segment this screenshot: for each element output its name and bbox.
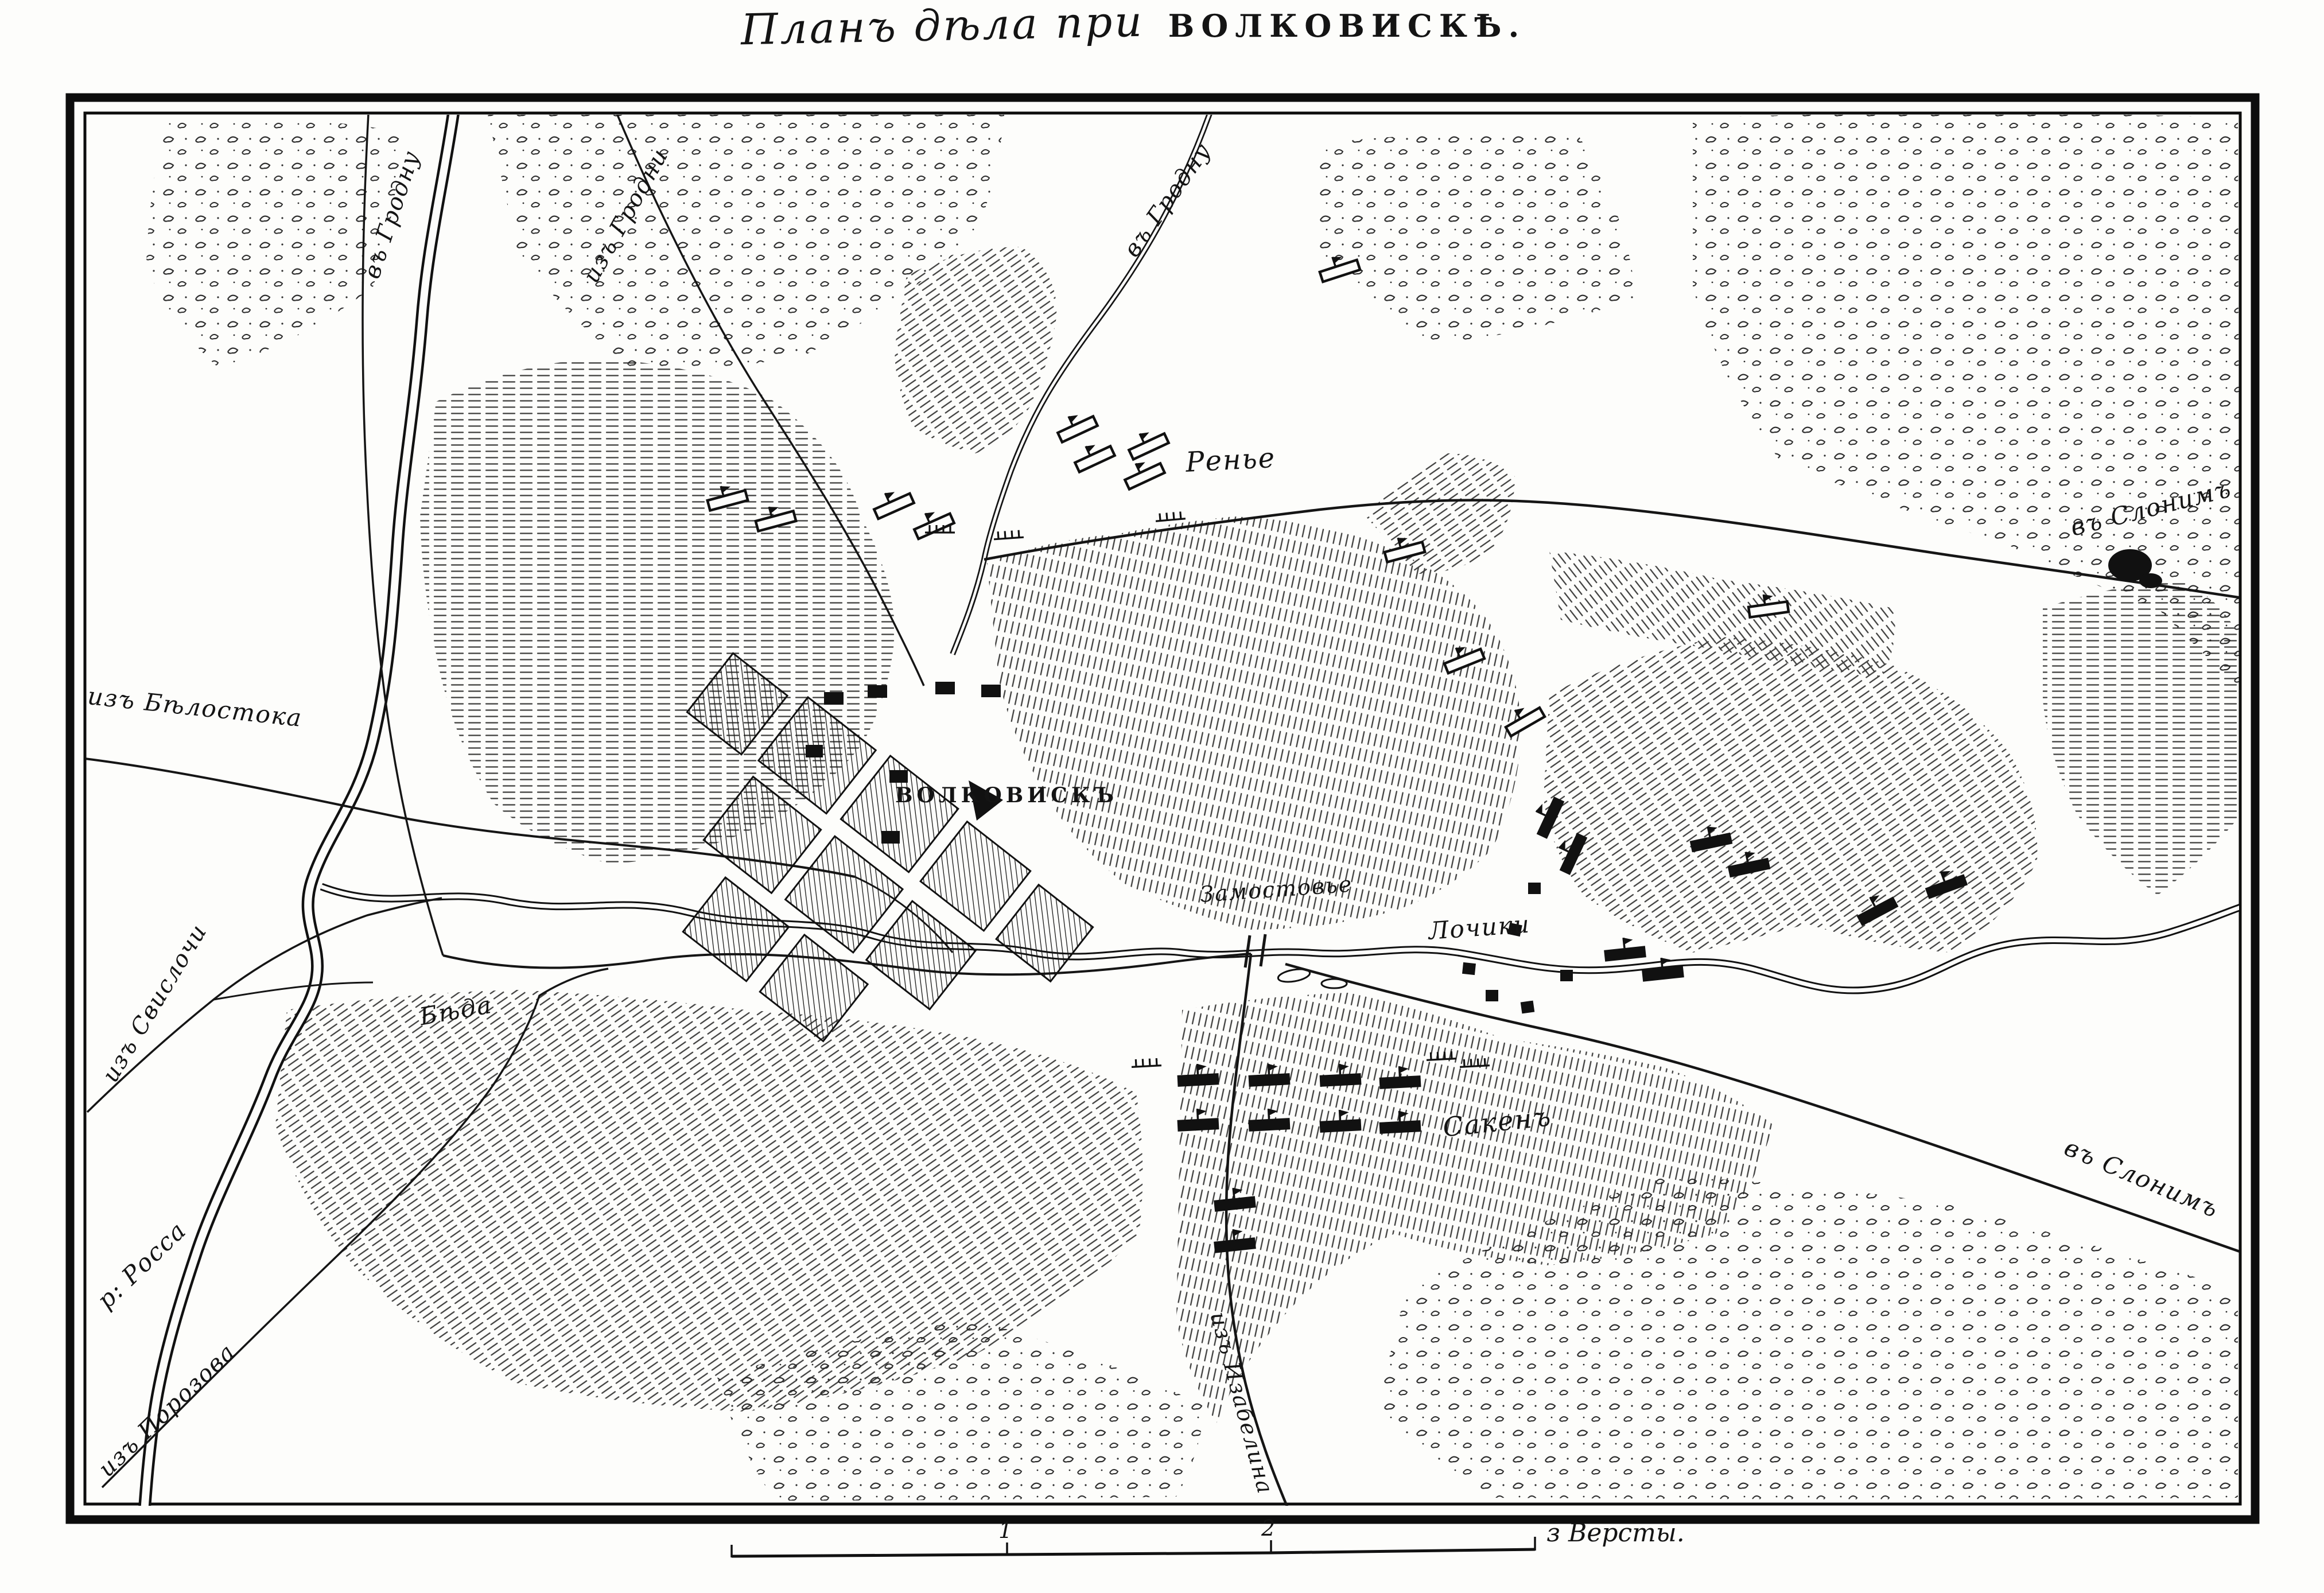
scale-bar	[732, 1537, 1535, 1557]
road-svisloch-fork	[213, 982, 373, 1000]
village-house	[1486, 990, 1498, 1001]
village-lochiki-houses	[1462, 883, 1573, 1013]
scale-label-versts: з Версты.	[1546, 1521, 1685, 1546]
map-title-script: Планъ дѣла при	[740, 0, 1145, 55]
scale-label-2: 2	[1261, 1517, 1275, 1539]
scale-label-1: 1	[998, 1520, 1012, 1541]
saxon-unit-marker	[1071, 437, 1115, 472]
town-block	[683, 877, 788, 981]
map-engraving	[0, 0, 2324, 1593]
town-label-volkovysk: ВОЛКОВИСКЪ	[895, 785, 1118, 806]
skirmish-line-marker	[993, 530, 1024, 539]
saxon-unit-marker	[870, 484, 914, 519]
skirmish-line-marker	[1131, 1058, 1161, 1067]
forest-above-reynier	[1320, 133, 1635, 344]
town-block	[920, 822, 1031, 931]
map-title-caps: ВОЛКОВИСКѢ.	[1168, 7, 1526, 44]
hill-east-lochiki	[1544, 637, 2037, 953]
village-house	[1462, 962, 1476, 975]
skirmish-line-marker	[1155, 511, 1186, 521]
town-block	[866, 901, 976, 1009]
village-house	[1528, 883, 1541, 894]
saxon-unit-marker	[910, 504, 954, 539]
scale-bar-line	[732, 1549, 1535, 1556]
russian-unit-marker	[1603, 935, 1646, 961]
village-label-lochiki: Лочики	[1428, 912, 1531, 943]
village-house	[1560, 970, 1573, 981]
map-sheet: Планъ дѣла при ВОЛКОВИСКѢ. въ Гродну изъ…	[0, 0, 2324, 1593]
map-title: Планъ дѣла при ВОЛКОВИСКѢ.	[631, 0, 1635, 52]
village-house	[1521, 1001, 1535, 1014]
saxon-unit-marker	[1054, 407, 1098, 442]
hill-central-ridge	[987, 516, 1521, 930]
town-block	[996, 885, 1093, 981]
saxon-unit-marker	[1121, 454, 1165, 489]
commander-label-reynier: Ренье	[1185, 444, 1276, 476]
saxon-unit-marker	[1125, 424, 1169, 459]
